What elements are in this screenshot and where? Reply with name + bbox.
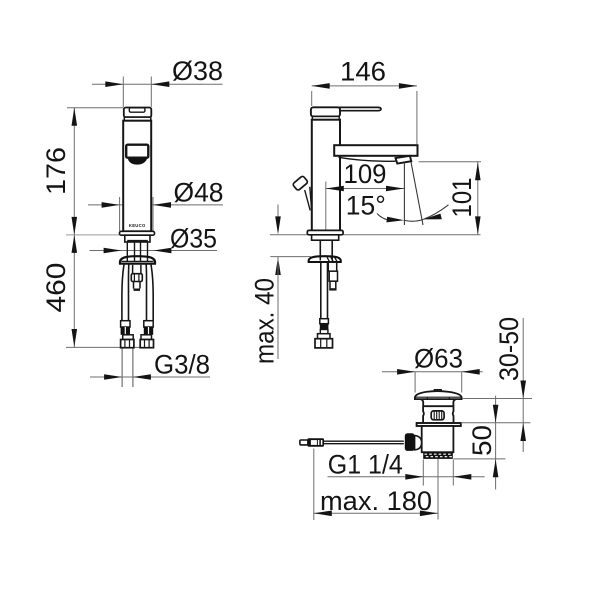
svg-text:101: 101	[447, 178, 477, 218]
svg-text:109: 109	[344, 159, 387, 189]
svg-text:G3/8: G3/8	[154, 350, 210, 380]
svg-text:146: 146	[340, 57, 386, 87]
svg-text:Ø38: Ø38	[172, 56, 223, 86]
svg-text:Ø35: Ø35	[170, 224, 217, 254]
svg-text:176: 176	[41, 147, 71, 195]
svg-text:Ø63: Ø63	[414, 344, 463, 374]
svg-text:30-50: 30-50	[494, 317, 524, 381]
svg-text:G1 1/4: G1 1/4	[328, 450, 403, 480]
svg-text:460: 460	[41, 263, 71, 313]
svg-text:50: 50	[467, 425, 497, 456]
svg-text:max. 40: max. 40	[250, 278, 280, 364]
svg-text:KEUCO: KEUCO	[129, 223, 146, 228]
svg-text:Ø48: Ø48	[174, 178, 224, 208]
svg-text:max. 180: max. 180	[320, 486, 432, 516]
